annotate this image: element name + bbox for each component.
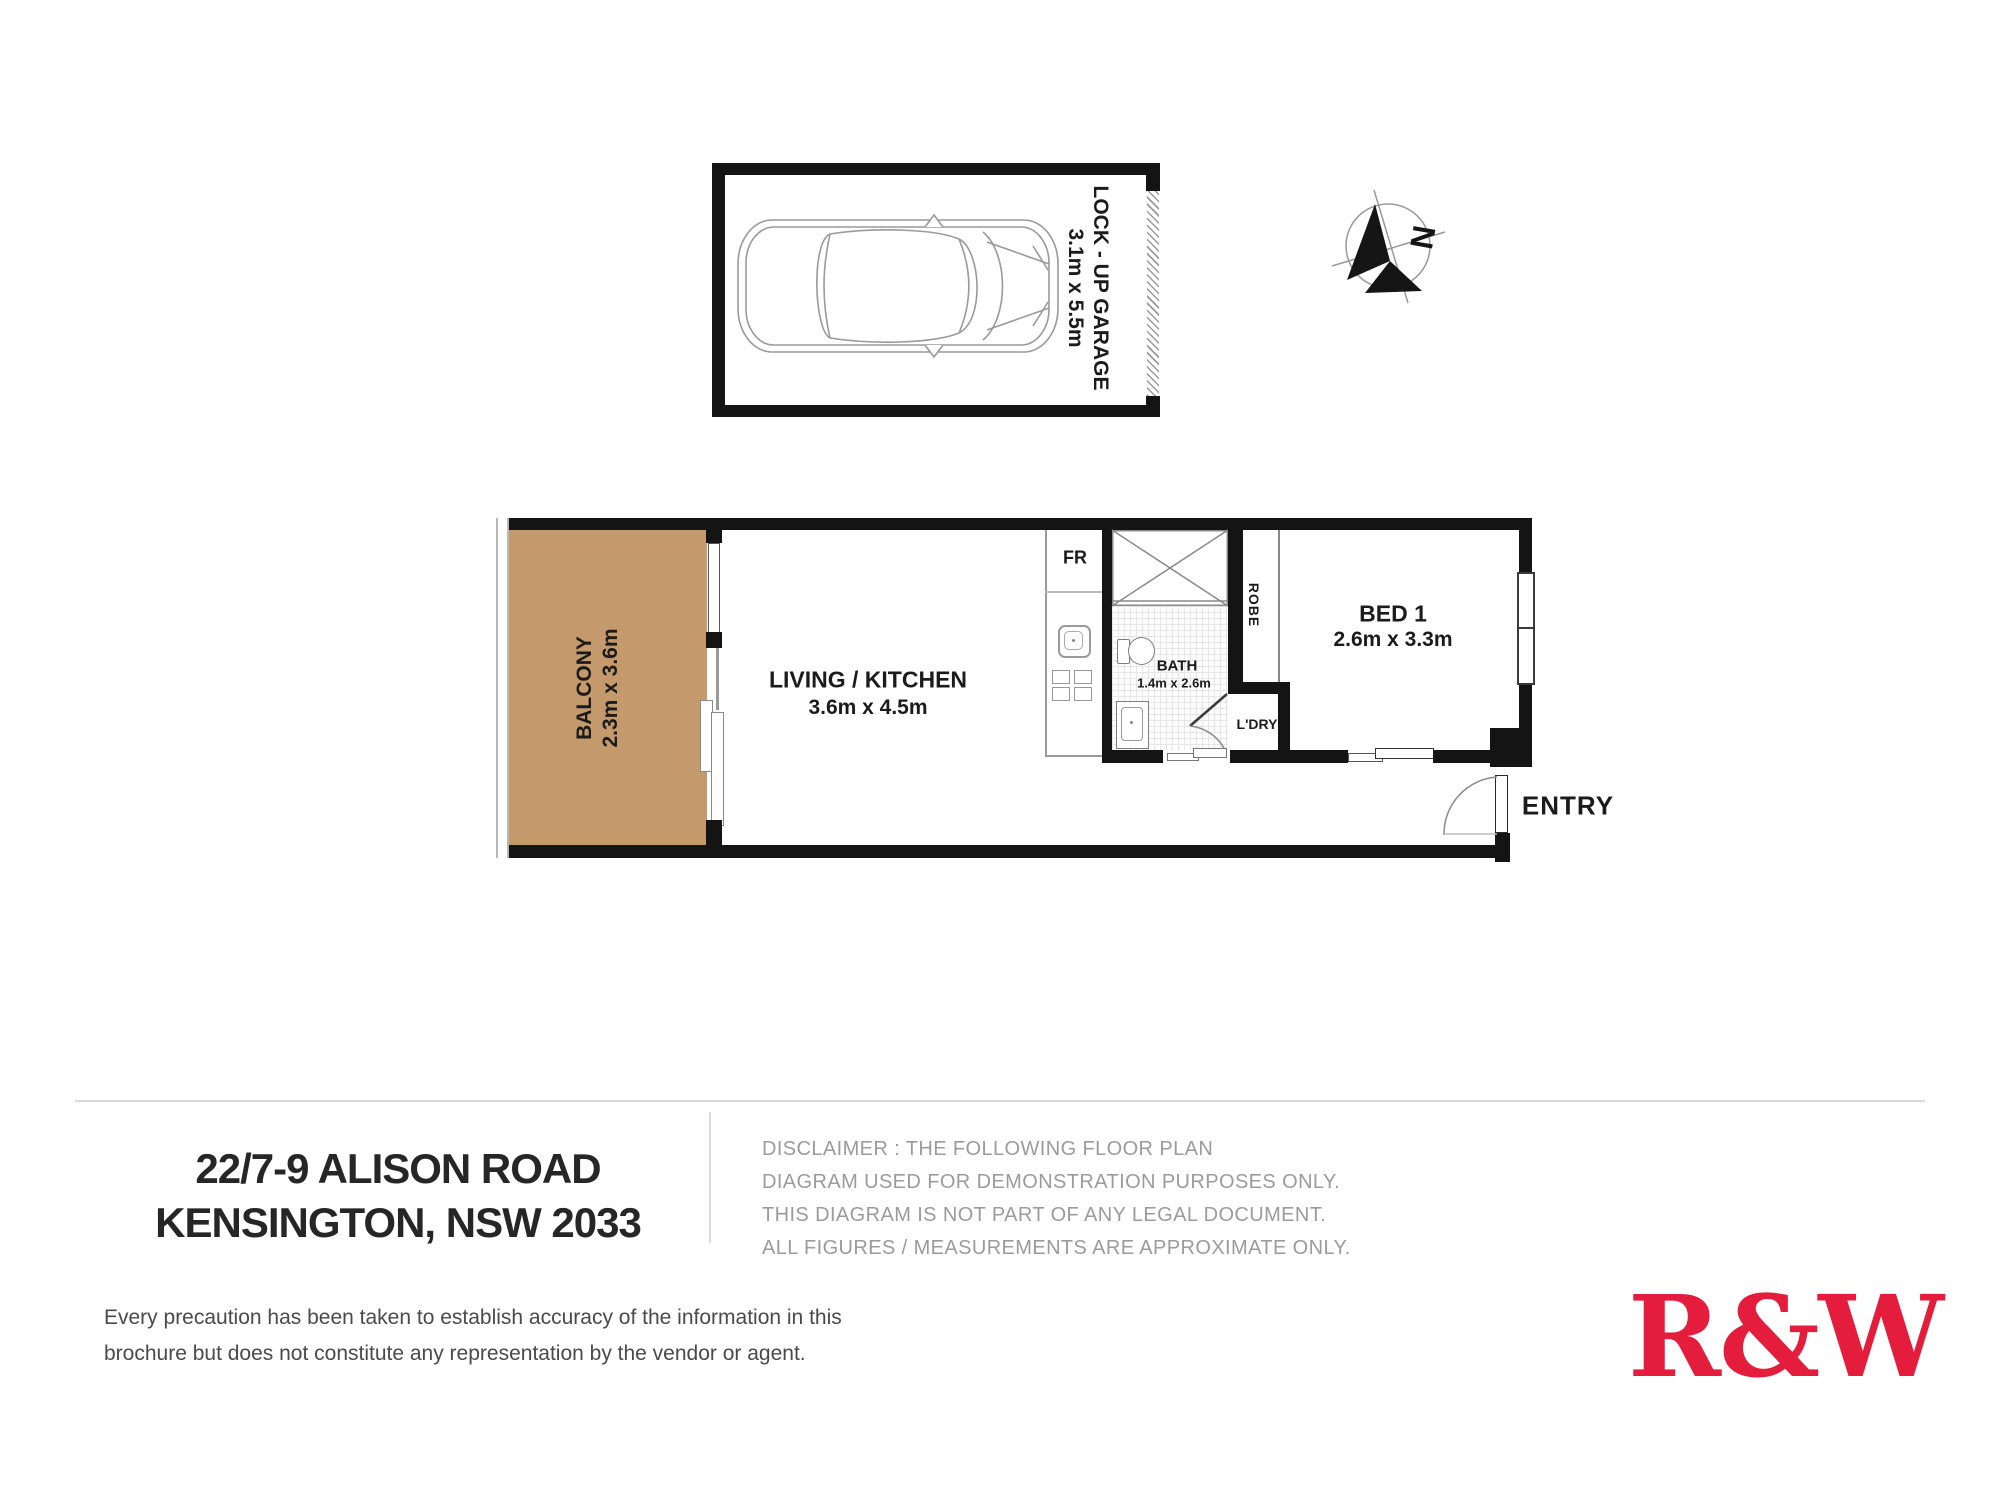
bath-dims: 1.4m x 2.6m xyxy=(1137,676,1211,691)
unit-bottom-wall xyxy=(505,845,1495,858)
unit-right-wall-upper xyxy=(1519,518,1532,572)
laundry-door-icon xyxy=(1180,690,1230,754)
living-label: LIVING / KITCHEN xyxy=(769,667,967,694)
property-address: 22/7-9 ALISON ROAD KENSINGTON, NSW 2033 xyxy=(128,1142,668,1250)
disclaimer-text: DISCLAIMER : THE FOLLOWING FLOOR PLAN DI… xyxy=(762,1133,1351,1265)
fine-print-text: Every precaution has been taken to estab… xyxy=(104,1300,842,1372)
agency-logo: R&W xyxy=(1628,1282,1920,1394)
garage-dims-text: 3.1m x 5.5m xyxy=(1063,186,1088,391)
bath-sliding-door-2 xyxy=(1193,748,1227,758)
bath-label: BATH xyxy=(1157,658,1198,675)
living-dims: 3.6m x 4.5m xyxy=(808,696,927,720)
balcony-window xyxy=(708,543,720,634)
garage-label-text: LOCK - UP GARAGE xyxy=(1088,186,1113,391)
north-compass-icon: N xyxy=(1328,186,1452,310)
robe-label: ROBE xyxy=(1246,583,1262,627)
garage-door-jamb-bottom xyxy=(1146,396,1160,417)
garage-bottom-wall xyxy=(712,405,1160,417)
floor-plan-page: LOCK - UP GARAGE 3.1m x 5.5m N BALCONY 2… xyxy=(0,0,2000,1500)
garage-door-jamb-top xyxy=(1146,163,1160,191)
shower-icon xyxy=(1112,530,1228,606)
footer-vertical-divider xyxy=(709,1112,711,1243)
fine-print-line-1: Every precaution has been taken to estab… xyxy=(104,1300,842,1336)
disclaimer-line-2: DIAGRAM USED FOR DEMONSTRATION PURPOSES … xyxy=(762,1166,1351,1199)
disclaimer-line-3: THIS DIAGRAM IS NOT PART OF ANY LEGAL DO… xyxy=(762,1199,1351,1232)
balcony-sliding-door-panel-2 xyxy=(711,712,724,826)
balcony-label-text: BALCONY xyxy=(572,628,598,747)
hall-wall-seg-3 xyxy=(1433,750,1490,763)
fridge-divider xyxy=(1046,591,1103,593)
balcony-fixed-panel xyxy=(716,648,719,710)
unit-right-wall-lower xyxy=(1519,683,1532,728)
kitchen-bath-wall xyxy=(1102,518,1112,763)
disclaimer-line-4: ALL FIGURES / MEASUREMENTS ARE APPROXIMA… xyxy=(762,1232,1351,1265)
hall-wall-seg-2 xyxy=(1230,750,1348,763)
kitchen-counter-edge xyxy=(1045,530,1047,757)
cooktop-icon xyxy=(1052,670,1093,701)
bed1-window xyxy=(1517,572,1535,685)
balcony-dims-text: 2.3m x 3.6m xyxy=(598,628,624,747)
entry-corner-block xyxy=(1490,728,1532,767)
entry-door-arc-icon xyxy=(1441,771,1503,837)
fridge-label: FR xyxy=(1063,548,1087,569)
unit-top-wall xyxy=(509,518,1532,530)
hall-wall-seg-1 xyxy=(1102,750,1163,763)
garage-label: LOCK - UP GARAGE 3.1m x 5.5m xyxy=(1063,186,1113,391)
robe-front-line xyxy=(1278,530,1280,682)
balcony-wall-mid xyxy=(706,632,722,648)
car-icon xyxy=(735,212,1065,360)
vanity-icon xyxy=(1116,701,1149,749)
balcony-railing xyxy=(496,518,509,858)
disclaimer-line-1: DISCLAIMER : THE FOLLOWING FLOOR PLAN xyxy=(762,1133,1351,1166)
laundry-label: L'DRY xyxy=(1237,716,1278,732)
bath-robe-wall xyxy=(1228,518,1243,683)
address-line-1: 22/7-9 ALISON ROAD xyxy=(128,1142,668,1196)
garage-top-wall xyxy=(712,163,1160,175)
bed-sliding-door-2 xyxy=(1375,748,1434,759)
fine-print-line-2: brochure but does not constitute any rep… xyxy=(104,1336,842,1372)
bed1-label: BED 1 xyxy=(1359,601,1427,628)
kitchen-counter-end xyxy=(1045,755,1103,757)
balcony-wall-bottom xyxy=(706,820,722,858)
north-letter: N xyxy=(1403,223,1442,252)
bed1-dims: 2.6m x 3.3m xyxy=(1333,628,1452,652)
balcony-label: BALCONY 2.3m x 3.6m xyxy=(572,628,624,747)
garage-left-wall xyxy=(712,163,725,417)
entry-label: ENTRY xyxy=(1522,791,1614,822)
kitchen-sink-icon xyxy=(1058,625,1091,658)
footer-divider-line xyxy=(75,1100,1925,1102)
garage-door-icon xyxy=(1147,191,1159,396)
entry-wall-stub xyxy=(1495,833,1510,862)
address-line-2: KENSINGTON, NSW 2033 xyxy=(128,1196,668,1250)
balcony-wall-top xyxy=(706,530,722,543)
